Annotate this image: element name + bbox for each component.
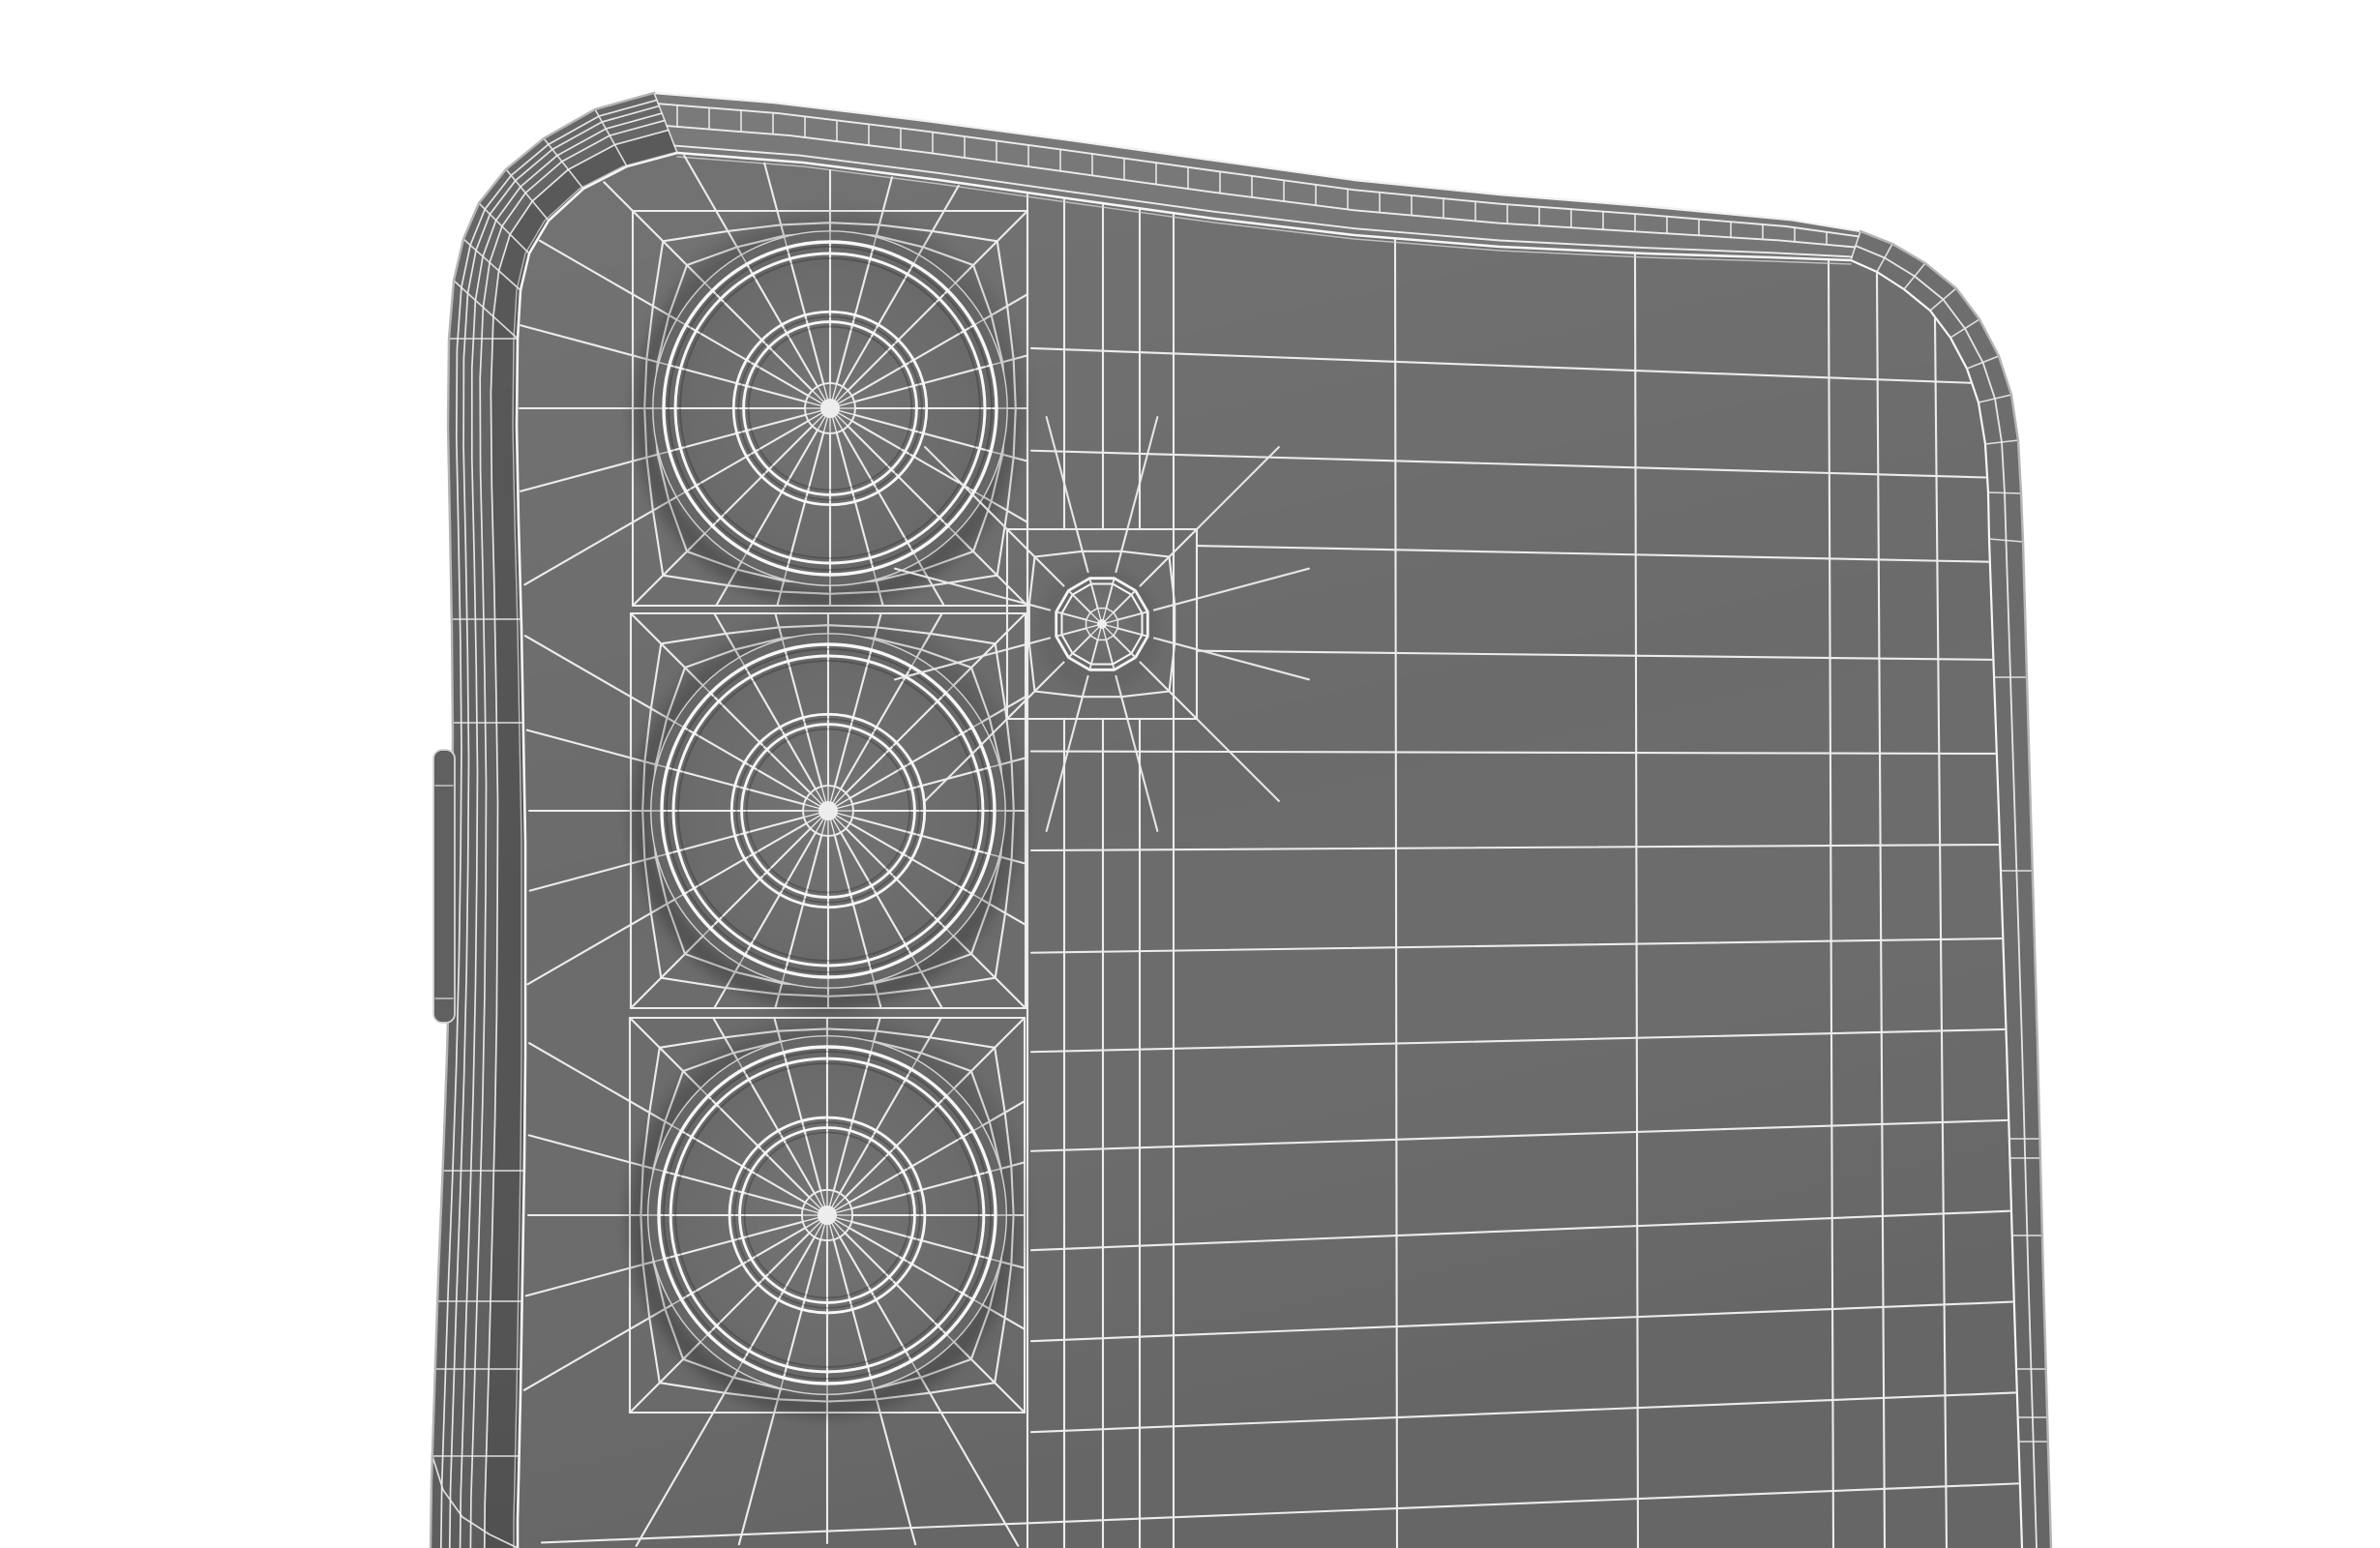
camera-lens-top	[653, 231, 1007, 585]
wireframe-3d-render	[0, 0, 2380, 1548]
side-button	[433, 750, 455, 1023]
flash-led	[1049, 571, 1155, 677]
camera-lens-middle	[651, 634, 1005, 988]
camera-lens-bottom	[648, 1036, 1007, 1395]
render-viewport	[0, 0, 2380, 1548]
